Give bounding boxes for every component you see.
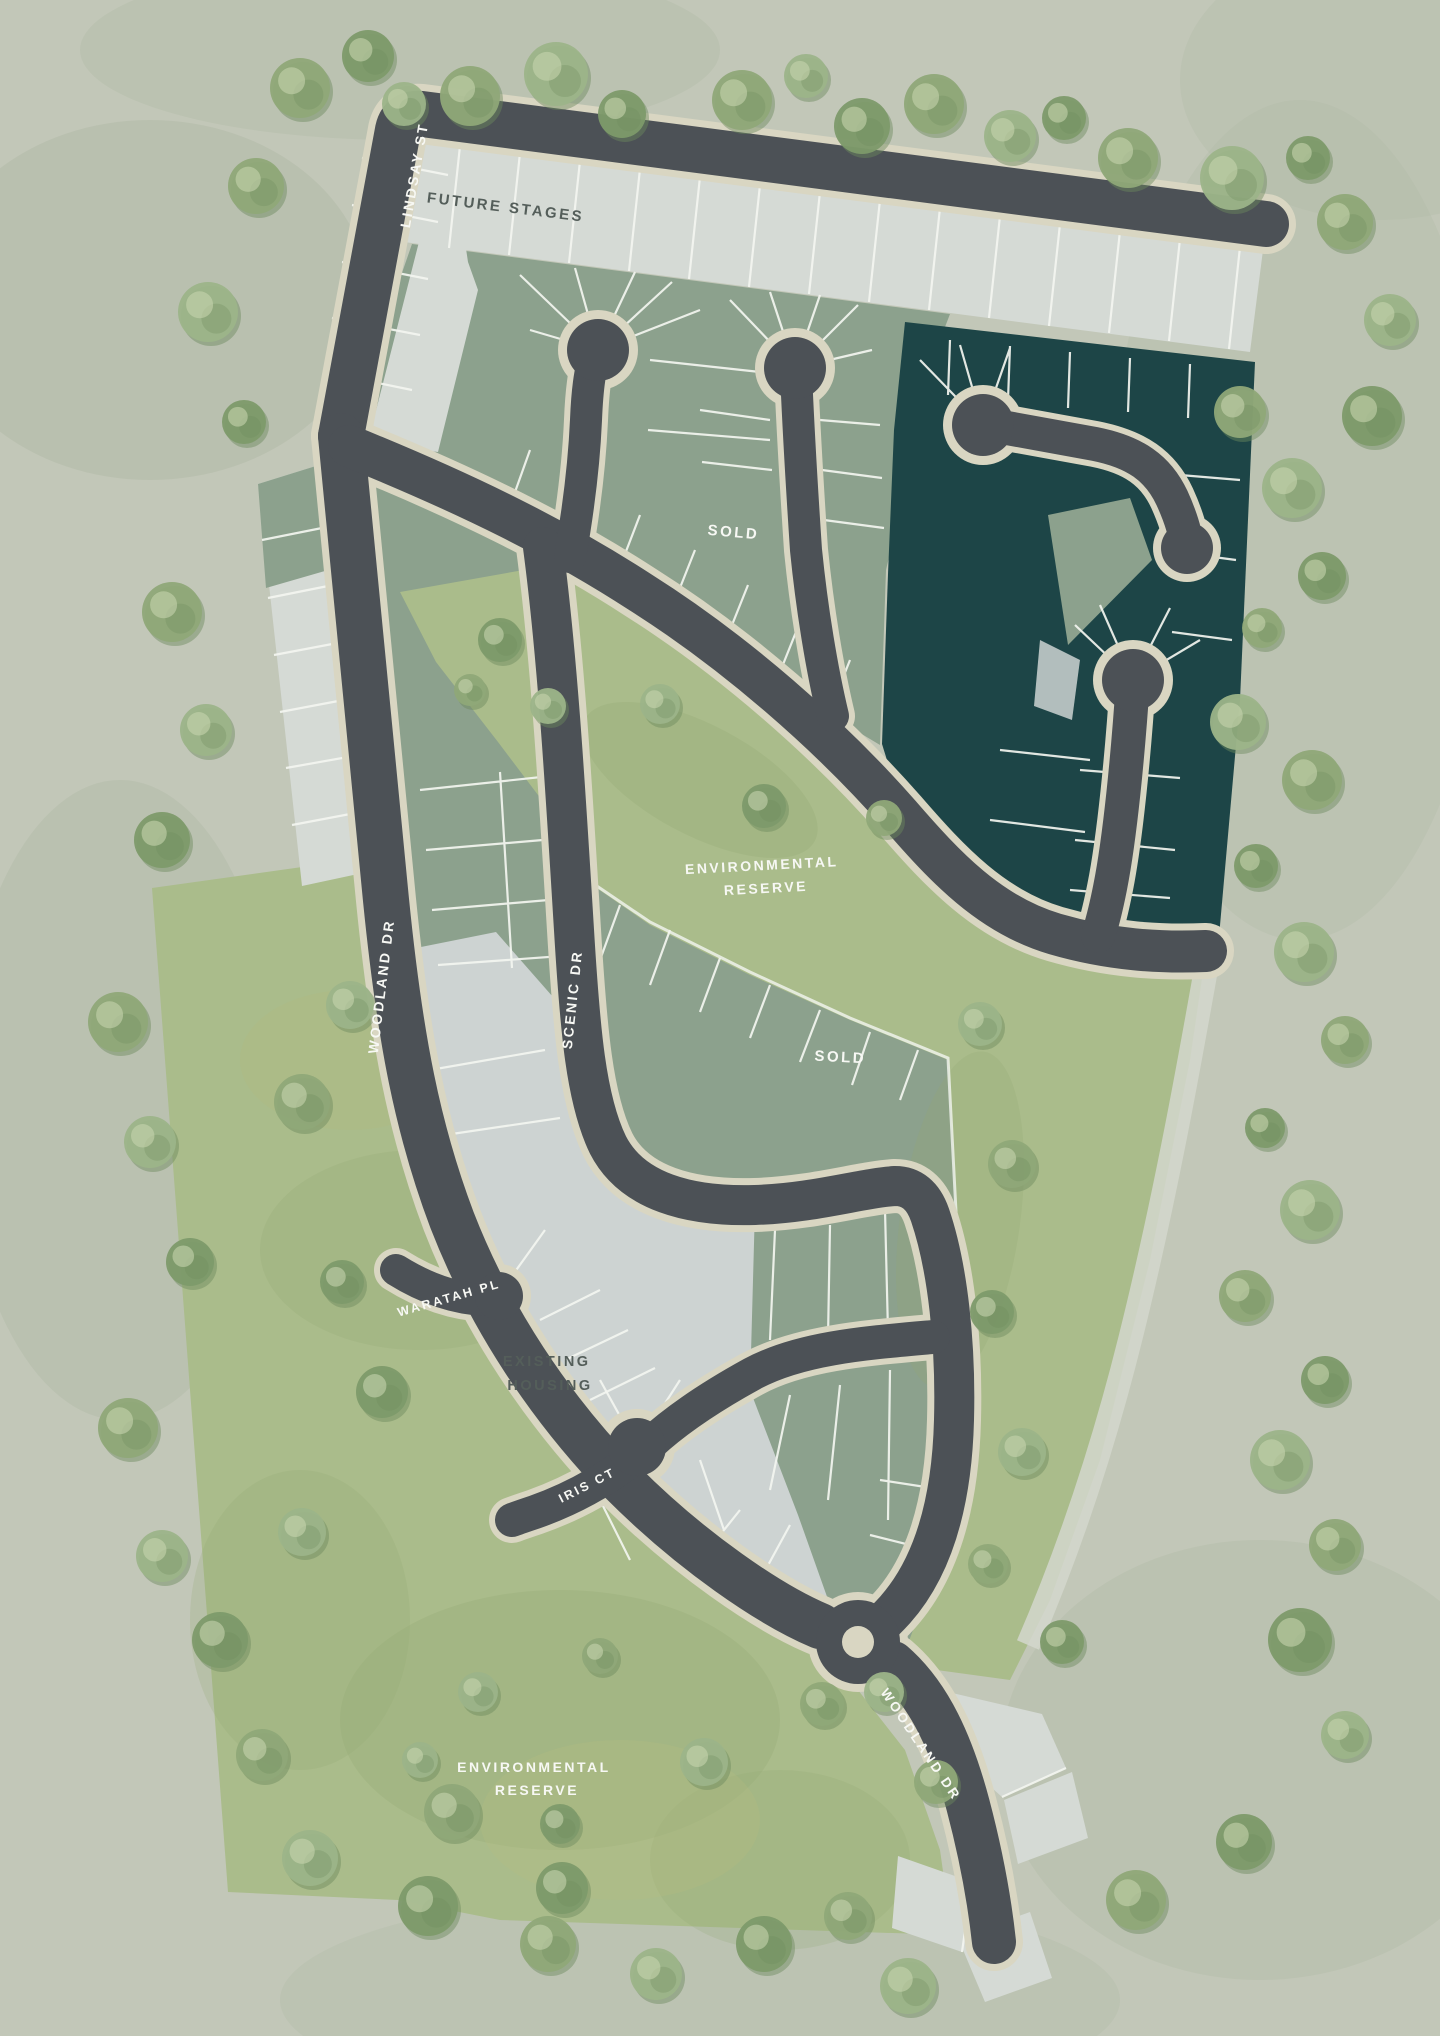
cul-bulb-1: [567, 319, 629, 381]
cul-bulb-teal-west: [952, 394, 1014, 456]
roundabout-island: [842, 1626, 874, 1658]
masterplan-map: LINDSAY ST FUTURE STAGES SOLD ENVIRONMEN…: [0, 0, 1440, 2036]
cul-bulb-teal-east: [1161, 522, 1213, 574]
cul-bulb-iris-ct: [608, 1418, 666, 1476]
region-label-sold-lower: SOLD: [814, 1048, 866, 1068]
cul-bulb-teal-stem: [1102, 649, 1164, 711]
cul-bulb-2: [764, 337, 826, 399]
cul-bulb-waratah-pl: [475, 1272, 523, 1320]
masterplan-page: LINDSAY ST FUTURE STAGES SOLD ENVIRONMEN…: [0, 0, 1440, 2036]
